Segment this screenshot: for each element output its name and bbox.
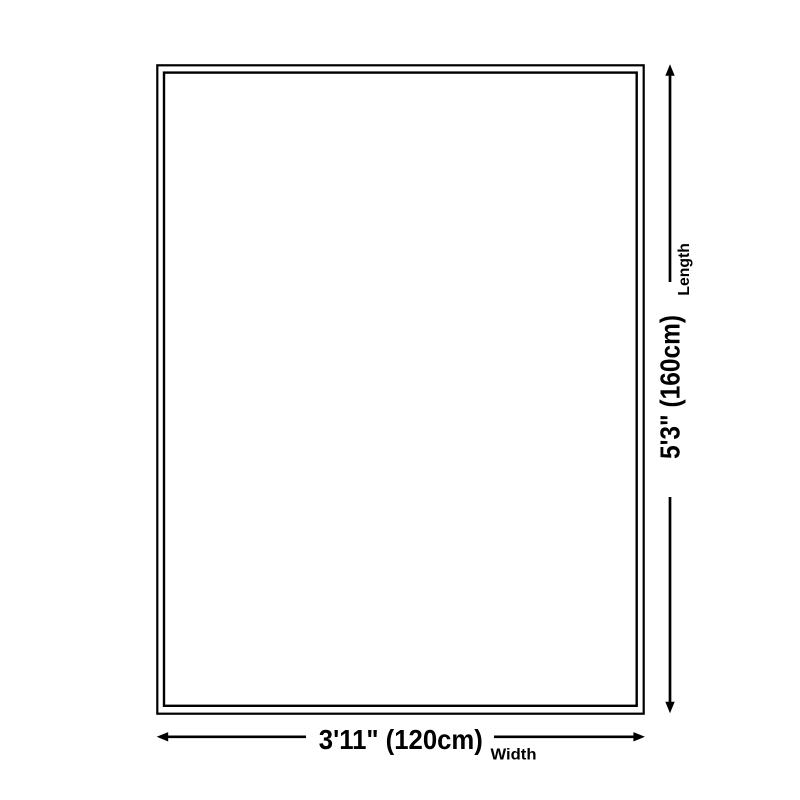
svg-text:5'3" (160cm): 5'3" (160cm) [655, 315, 686, 459]
svg-text:3'11" (120cm): 3'11" (120cm) [319, 724, 483, 755]
svg-text:Length: Length [676, 243, 693, 296]
svg-text:Width: Width [491, 746, 537, 763]
